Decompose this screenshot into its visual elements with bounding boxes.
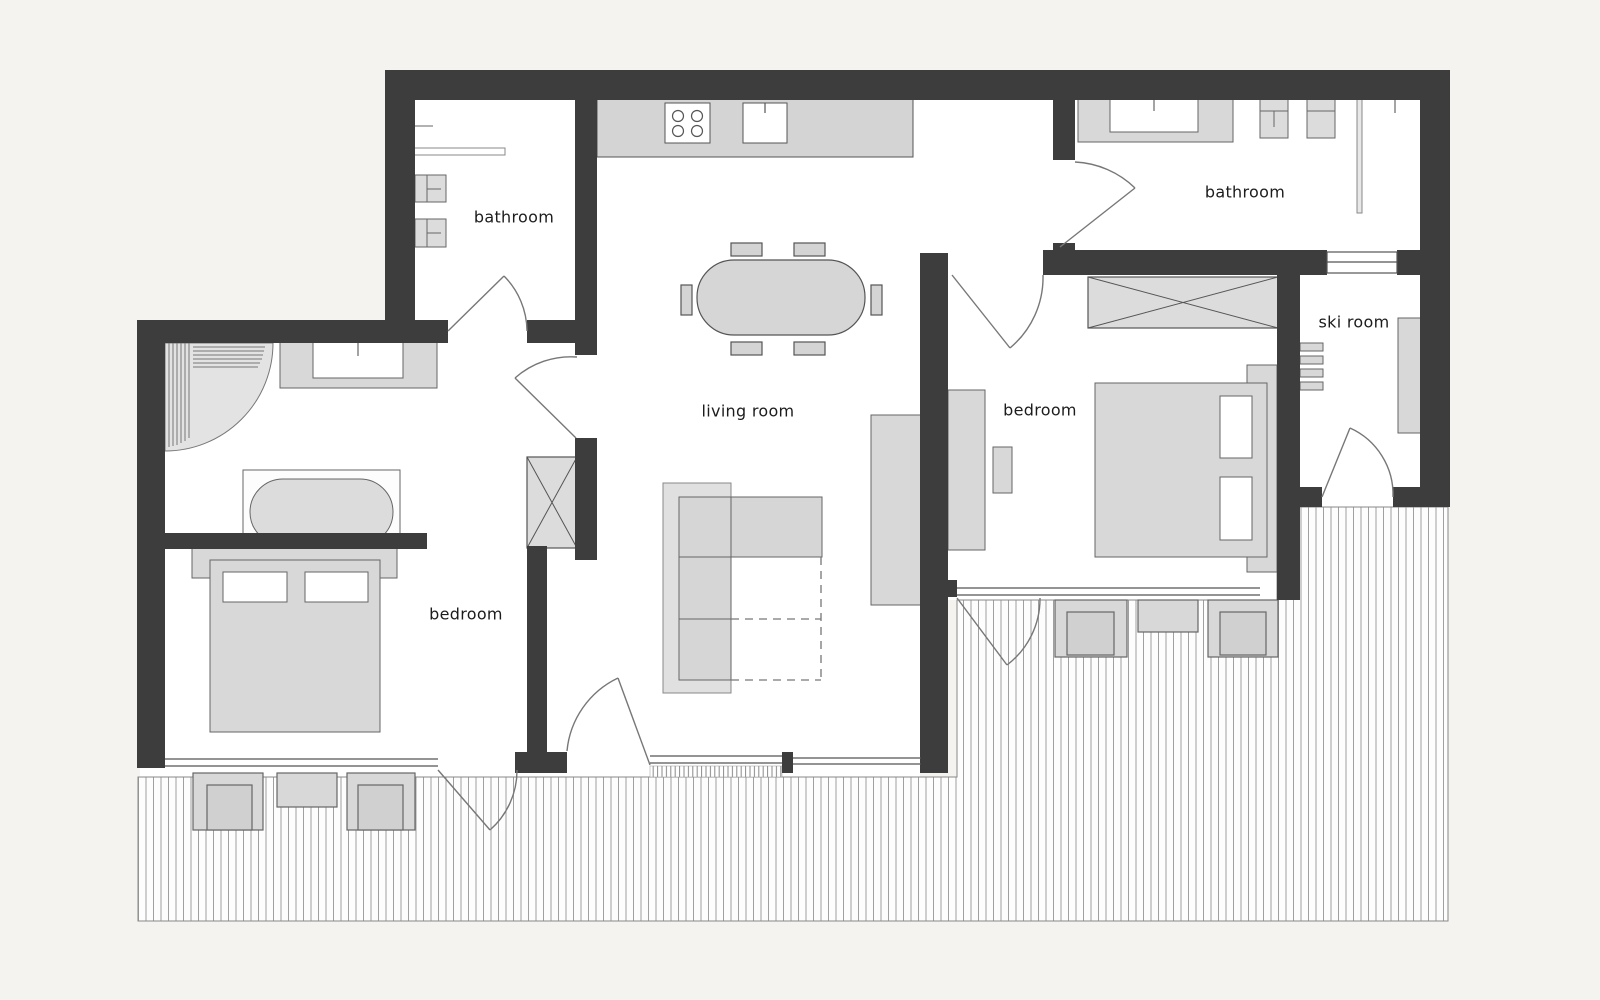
window-ski-room: [1327, 252, 1397, 273]
door-threshold-hatch: [650, 766, 782, 777]
sideboard: [871, 415, 921, 605]
room-label-bedroom-left: bedroom: [429, 605, 503, 624]
floor-plan-canvas: bathroom living room bedroom bedroom ski…: [0, 0, 1600, 1000]
room-label-living-room: living room: [702, 402, 795, 421]
room-label-bathroom-right: bathroom: [1205, 183, 1285, 202]
stove-icon: [665, 103, 710, 143]
room-label-bathroom-left: bathroom: [474, 208, 554, 227]
toilet-icon: [1260, 98, 1288, 138]
kitchen-counter: [597, 98, 913, 157]
room-label-bedroom-right: bedroom: [1003, 401, 1077, 420]
shower-screen: [1357, 98, 1362, 213]
bed-right: [1095, 365, 1277, 572]
toilet-icon: [415, 175, 446, 202]
room-label-ski-room: ski room: [1319, 313, 1390, 332]
bidet-icon: [1307, 98, 1335, 138]
vanity-sink-left: [280, 342, 437, 388]
kitchen-sink-icon: [743, 103, 787, 143]
floor-plan-drawing: [0, 0, 1600, 1000]
shaft-box: [527, 457, 577, 548]
vanity-sink-right: [1078, 97, 1233, 142]
wardrobe: [1088, 277, 1278, 328]
bidet-icon: [415, 219, 446, 247]
bed-left: [192, 548, 397, 732]
ski-cabinet: [1398, 318, 1422, 433]
